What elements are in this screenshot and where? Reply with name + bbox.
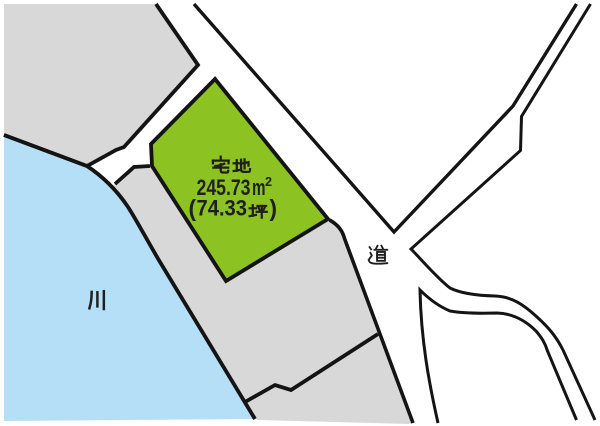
svg-text:(: ( xyxy=(189,195,197,221)
svg-text:m: m xyxy=(252,175,266,200)
svg-text:74.33: 74.33 xyxy=(197,196,248,221)
svg-text:2: 2 xyxy=(265,174,272,189)
svg-text:): ) xyxy=(270,195,278,221)
